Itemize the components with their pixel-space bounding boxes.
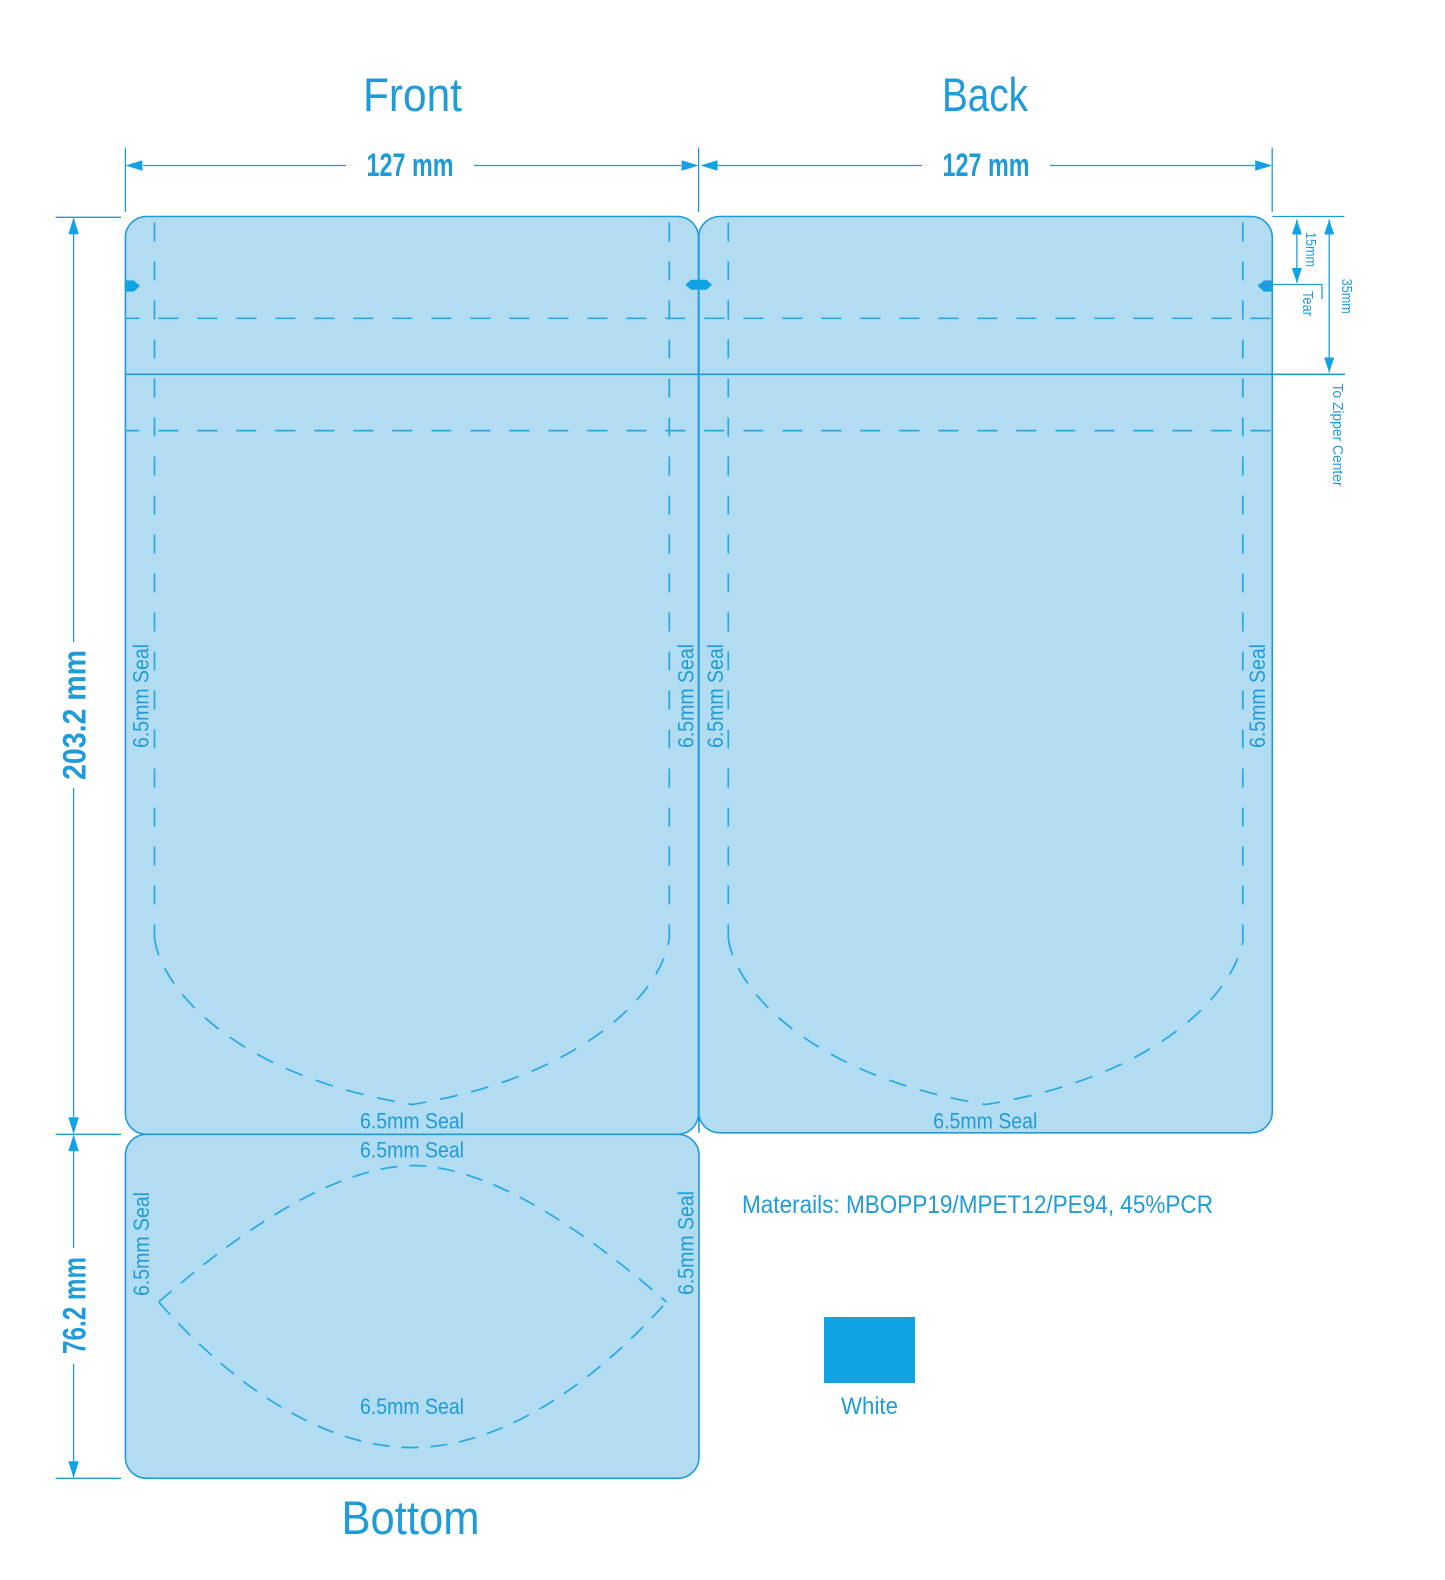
svg-text:To Zipper Center: To Zipper Center [1329,384,1346,487]
svg-text:6.5mm Seal: 6.5mm Seal [674,1191,699,1295]
svg-text:6.5mm Seal: 6.5mm Seal [129,644,154,748]
svg-text:127 mm: 127 mm [367,147,454,183]
svg-text:76.2 mm: 76.2 mm [57,1257,93,1354]
svg-text:6.5mm Seal: 6.5mm Seal [360,1394,464,1419]
svg-text:6.5mm Seal: 6.5mm Seal [129,1192,154,1296]
svg-text:6.5mm Seal: 6.5mm Seal [674,644,699,748]
svg-text:Front: Front [363,68,462,121]
svg-text:6.5mm Seal: 6.5mm Seal [360,1109,464,1134]
svg-text:127 mm: 127 mm [943,147,1030,183]
svg-text:Bottom: Bottom [342,1491,480,1544]
svg-text:6.5mm Seal: 6.5mm Seal [703,644,728,748]
svg-text:Back: Back [942,68,1028,121]
svg-text:6.5mm Seal: 6.5mm Seal [933,1109,1037,1134]
svg-text:6.5mm Seal: 6.5mm Seal [360,1138,464,1163]
svg-text:6.5mm Seal: 6.5mm Seal [1245,644,1270,748]
svg-text:15mm: 15mm [1302,232,1319,267]
svg-text:White: White [841,1393,898,1420]
svg-text:Materails: MBOPP19/MPET12/PE94: Materails: MBOPP19/MPET12/PE94, 45%PCR [742,1191,1213,1219]
svg-text:203.2 mm: 203.2 mm [57,650,93,780]
svg-text:35mm: 35mm [1338,279,1355,314]
svg-text:Tear: Tear [1299,291,1316,316]
